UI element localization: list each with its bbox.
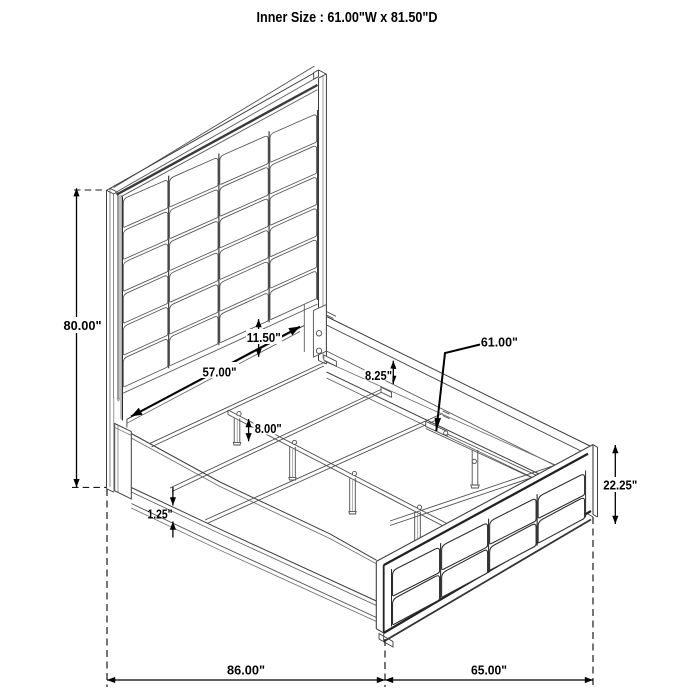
- svg-text:1.25": 1.25": [148, 507, 173, 522]
- svg-text:22.25": 22.25": [603, 478, 637, 493]
- svg-text:8.25": 8.25": [365, 368, 392, 383]
- svg-text:61.00": 61.00": [481, 335, 518, 350]
- svg-text:86.00": 86.00": [227, 663, 265, 678]
- svg-text:8.00": 8.00": [255, 421, 282, 436]
- svg-text:65.00": 65.00": [471, 663, 507, 678]
- svg-text:57.00": 57.00": [203, 365, 237, 380]
- svg-text:80.00": 80.00": [64, 318, 102, 333]
- svg-text:11.50": 11.50": [247, 330, 281, 345]
- svg-text:Inner Size : 61.00"W x 81.50"D: Inner Size : 61.00"W x 81.50"D: [257, 9, 438, 26]
